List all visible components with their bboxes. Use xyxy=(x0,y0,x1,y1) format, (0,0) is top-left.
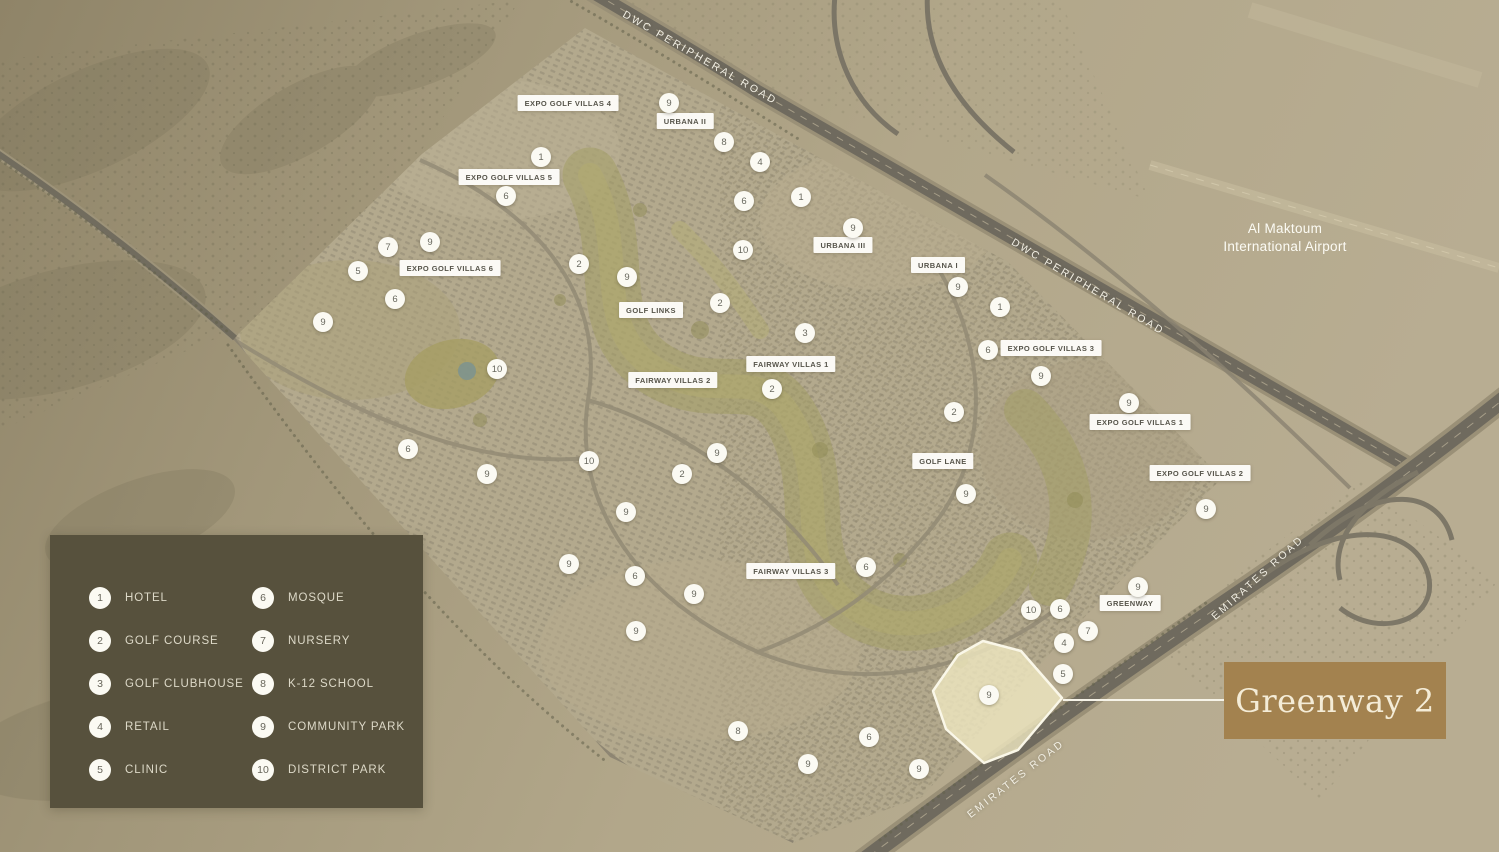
map-marker-9: 9 xyxy=(616,502,636,522)
area-label: URBANA II xyxy=(657,113,714,129)
airport-label-line1: Al Maktoum xyxy=(1223,220,1346,238)
legend-item-number: 2 xyxy=(89,630,111,652)
map-marker-8: 8 xyxy=(714,132,734,152)
masterplan-map: Al Maktoum International Airport DWC PER… xyxy=(0,0,1499,852)
legend-item-number: 4 xyxy=(89,716,111,738)
callout-connector-line xyxy=(1063,699,1224,701)
area-label: EXPO GOLF VILLAS 5 xyxy=(459,169,560,185)
map-marker-8: 8 xyxy=(728,721,748,741)
map-marker-9: 9 xyxy=(313,312,333,332)
legend-item-label: COMMUNITY PARK xyxy=(288,721,405,733)
legend-item-label: GOLF CLUBHOUSE xyxy=(125,678,244,690)
area-label: EXPO GOLF VILLAS 1 xyxy=(1090,414,1191,430)
legend-item-label: NURSERY xyxy=(288,635,350,647)
area-label: EXPO GOLF VILLAS 3 xyxy=(1001,340,1102,356)
road-label: EMIRATES ROAD xyxy=(965,737,1067,820)
road-label: DWC PERIPHERAL ROAD xyxy=(620,9,779,108)
map-marker-6: 6 xyxy=(385,289,405,309)
legend-item-label: DISTRICT PARK xyxy=(288,764,386,776)
map-marker-10: 10 xyxy=(1021,600,1041,620)
legend-item-number: 5 xyxy=(89,759,111,781)
map-marker-6: 6 xyxy=(734,191,754,211)
map-marker-3: 3 xyxy=(795,323,815,343)
map-marker-2: 2 xyxy=(569,254,589,274)
airport-label-line2: International Airport xyxy=(1223,238,1346,256)
legend-item: 3GOLF CLUBHOUSE xyxy=(89,673,252,695)
map-marker-10: 10 xyxy=(487,359,507,379)
legend-item-number: 9 xyxy=(252,716,274,738)
legend-item-label: K-12 SCHOOL xyxy=(288,678,374,690)
area-label: GOLF LINKS xyxy=(619,302,683,318)
legend-item: 6MOSQUE xyxy=(252,587,423,609)
map-marker-2: 2 xyxy=(672,464,692,484)
area-label: URBANA I xyxy=(911,257,965,273)
map-marker-9: 9 xyxy=(979,685,999,705)
area-label: GOLF LANE xyxy=(912,453,973,469)
area-label: FAIRWAY VILLAS 2 xyxy=(628,372,717,388)
greenway2-callout-label: Greenway 2 xyxy=(1235,682,1434,720)
legend-item-label: MOSQUE xyxy=(288,592,345,604)
road-label: DWC PERIPHERAL ROAD xyxy=(1009,236,1167,337)
legend-item-number: 10 xyxy=(252,759,274,781)
map-marker-10: 10 xyxy=(733,240,753,260)
map-marker-9: 9 xyxy=(1119,393,1139,413)
legend-item-number: 1 xyxy=(89,587,111,609)
area-label: EXPO GOLF VILLAS 2 xyxy=(1150,465,1251,481)
legend-item: 4RETAIL xyxy=(89,716,252,738)
legend-item-number: 6 xyxy=(252,587,274,609)
map-marker-9: 9 xyxy=(420,232,440,252)
map-marker-9: 9 xyxy=(956,484,976,504)
legend-item: 1HOTEL xyxy=(89,587,252,609)
map-marker-9: 9 xyxy=(617,267,637,287)
area-label: FAIRWAY VILLAS 3 xyxy=(746,563,835,579)
map-marker-10: 10 xyxy=(579,451,599,471)
legend-item: 9COMMUNITY PARK xyxy=(252,716,423,738)
map-marker-5: 5 xyxy=(348,261,368,281)
map-marker-9: 9 xyxy=(843,218,863,238)
map-marker-9: 9 xyxy=(684,584,704,604)
map-marker-7: 7 xyxy=(1078,621,1098,641)
map-marker-6: 6 xyxy=(625,566,645,586)
map-marker-2: 2 xyxy=(762,379,782,399)
greenway2-callout[interactable]: Greenway 2 xyxy=(1224,662,1446,739)
map-marker-9: 9 xyxy=(477,464,497,484)
road-label: EMIRATES ROAD xyxy=(1209,533,1306,622)
airport-label: Al Maktoum International Airport xyxy=(1223,220,1346,256)
map-marker-6: 6 xyxy=(1050,599,1070,619)
map-marker-9: 9 xyxy=(909,759,929,779)
map-marker-9: 9 xyxy=(559,554,579,574)
map-marker-9: 9 xyxy=(1196,499,1216,519)
legend-item-label: RETAIL xyxy=(125,721,170,733)
map-marker-9: 9 xyxy=(798,754,818,774)
map-marker-2: 2 xyxy=(710,293,730,313)
legend-item-number: 8 xyxy=(252,673,274,695)
legend: 1HOTEL2GOLF COURSE3GOLF CLUBHOUSE4RETAIL… xyxy=(50,535,423,808)
legend-item: 5CLINIC xyxy=(89,759,252,781)
map-marker-9: 9 xyxy=(1128,577,1148,597)
map-marker-6: 6 xyxy=(398,439,418,459)
area-label: EXPO GOLF VILLAS 4 xyxy=(518,95,619,111)
map-marker-4: 4 xyxy=(1054,633,1074,653)
map-marker-2: 2 xyxy=(944,402,964,422)
map-marker-5: 5 xyxy=(1053,664,1073,684)
legend-item: 2GOLF COURSE xyxy=(89,630,252,652)
map-marker-6: 6 xyxy=(856,557,876,577)
map-marker-9: 9 xyxy=(659,93,679,113)
legend-item: 10DISTRICT PARK xyxy=(252,759,423,781)
area-label: FAIRWAY VILLAS 1 xyxy=(746,356,835,372)
map-marker-1: 1 xyxy=(531,147,551,167)
map-marker-6: 6 xyxy=(859,727,879,747)
map-marker-6: 6 xyxy=(496,186,516,206)
legend-item-label: HOTEL xyxy=(125,592,168,604)
map-marker-9: 9 xyxy=(948,277,968,297)
area-label: URBANA III xyxy=(813,237,872,253)
area-label: GREENWAY xyxy=(1100,595,1161,611)
map-marker-4: 4 xyxy=(750,152,770,172)
map-marker-9: 9 xyxy=(1031,366,1051,386)
legend-item: 8K-12 SCHOOL xyxy=(252,673,423,695)
area-label: EXPO GOLF VILLAS 6 xyxy=(400,260,501,276)
legend-item-number: 7 xyxy=(252,630,274,652)
map-marker-1: 1 xyxy=(791,187,811,207)
map-marker-6: 6 xyxy=(978,340,998,360)
legend-item-label: CLINIC xyxy=(125,764,168,776)
map-marker-1: 1 xyxy=(990,297,1010,317)
legend-item-label: GOLF COURSE xyxy=(125,635,219,647)
map-marker-7: 7 xyxy=(378,237,398,257)
legend-items: 1HOTEL2GOLF COURSE3GOLF CLUBHOUSE4RETAIL… xyxy=(89,576,423,791)
legend-item-number: 3 xyxy=(89,673,111,695)
legend-item: 7NURSERY xyxy=(252,630,423,652)
map-marker-9: 9 xyxy=(707,443,727,463)
map-marker-9: 9 xyxy=(626,621,646,641)
